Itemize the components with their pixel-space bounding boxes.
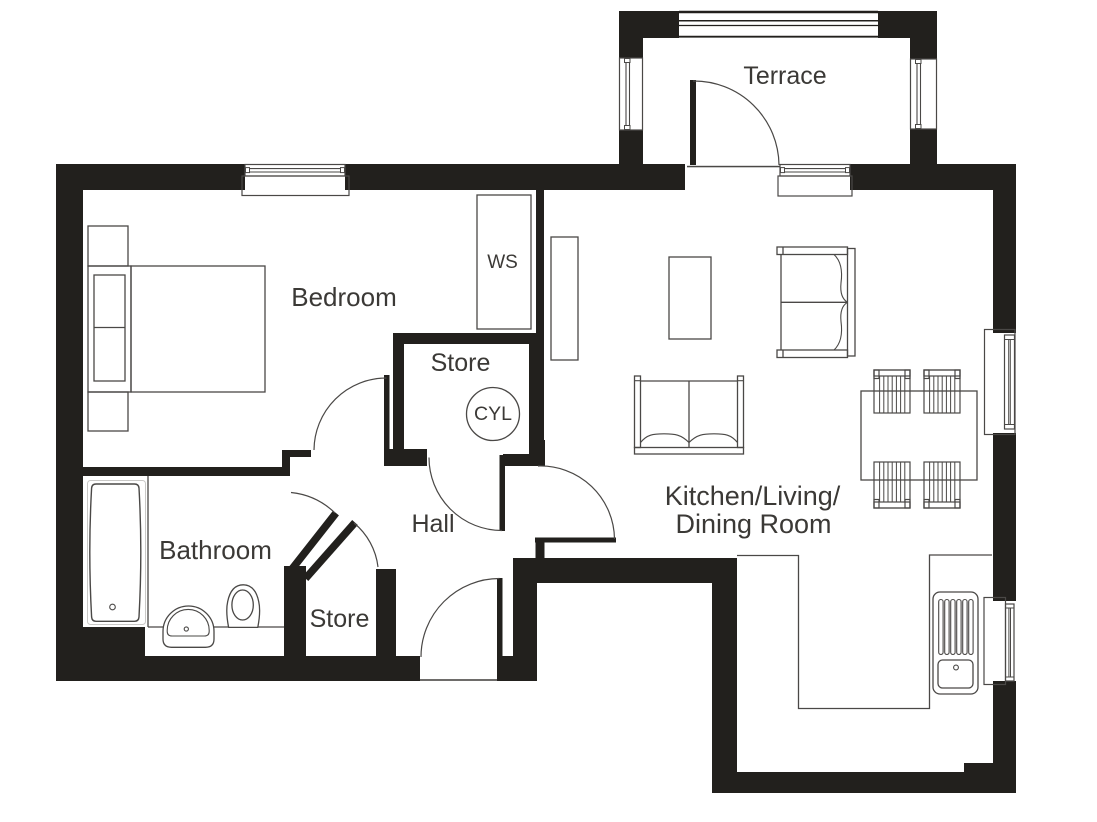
svg-text:Store: Store — [431, 349, 491, 377]
svg-text:CYL: CYL — [474, 403, 512, 425]
svg-text:Bedroom: Bedroom — [291, 282, 397, 312]
svg-text:Kitchen/Living/: Kitchen/Living/ — [665, 481, 841, 511]
svg-text:Dining Room: Dining Room — [675, 509, 831, 539]
svg-text:Bathroom: Bathroom — [159, 535, 272, 565]
svg-text:Hall: Hall — [411, 510, 454, 538]
svg-text:WS: WS — [487, 252, 518, 273]
svg-text:Terrace: Terrace — [743, 62, 826, 90]
svg-text:Store: Store — [310, 605, 370, 633]
